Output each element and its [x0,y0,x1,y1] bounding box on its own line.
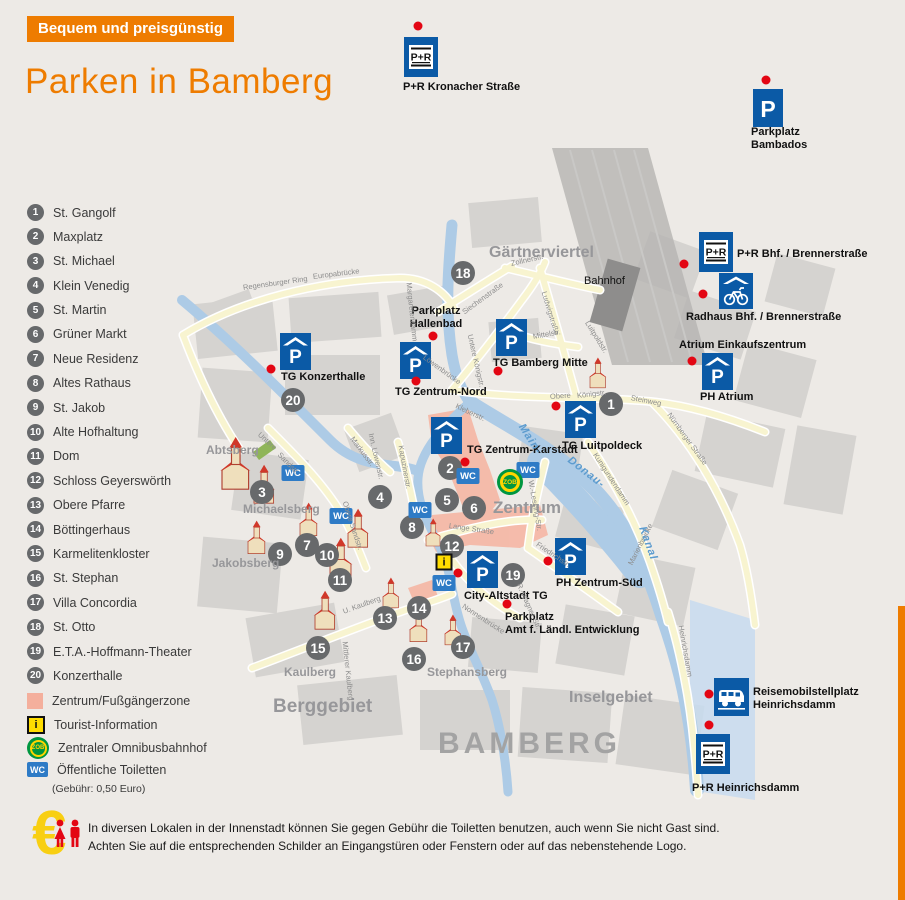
map-marker: 3 [250,480,274,504]
garage-parking-icon: P [467,551,498,593]
parking-label: ParkplatzAmt f. Ländl. Entwicklung [505,611,639,636]
svg-text:P: P [505,333,518,354]
street-label: Siechenstraße [460,280,504,316]
parking-label: TG Zentrum-Nord [395,386,487,399]
parking-label: Bahnhof [584,275,625,288]
location-dot [688,357,697,366]
svg-text:P: P [760,96,775,122]
location-dot [429,332,438,341]
street-label: Mittlerer Kaulberg [341,641,356,701]
parking-label: ParkplatzBambados [751,126,807,151]
street-label: Steinweg [630,393,662,408]
map-marker: 14 [407,596,431,620]
region-label: Inselgebiet [569,689,653,707]
parking-label: P+R Heinrichsdamm [692,782,799,795]
parking-label: Radhaus Bhf. / Brennerstraße [686,311,841,324]
garage-parking-icon: P [280,333,311,375]
map-overlay: P+RP+R Kronacher StraßePParkplatzBambado… [0,0,905,900]
city-label: BAMBERG [438,727,621,761]
location-dot [680,260,689,269]
location-dot [412,377,421,386]
garage-parking-icon: P [431,417,462,459]
tourist-info-icon: i [436,554,453,571]
garage-parking-icon: P [565,401,596,443]
wc-icon: WC [457,468,480,484]
parking-label: P+R Bhf. / Brennerstraße [737,248,868,261]
svg-text:P: P [440,431,453,452]
map-marker: 11 [328,568,352,592]
svg-text:P: P [711,367,724,388]
street-label: Kapuzinerstr. [397,445,413,490]
parking-label: Atrium Einkaufszentrum [679,339,806,352]
street-label: Mittelstr. [532,327,561,341]
map-marker: 10 [315,543,339,567]
location-dot [267,365,276,374]
location-dot [705,721,714,730]
parking-label: PH Atrium [700,391,753,404]
pr-parking-icon: P+R [699,232,733,277]
pr-parking-icon: P+R [404,37,438,82]
svg-text:P: P [409,356,422,377]
parking-label: ReisemobilstellplatzHeinrichsdamm [753,686,859,711]
map-marker: 6 [462,496,486,520]
region-label: Kaulberg [284,665,336,679]
parken-in-bamberg-poster: Bequem und preisgünstig Parken in Bamber… [0,0,905,900]
location-dot [705,690,714,699]
street-label: Untere [256,430,279,452]
location-dot [503,600,512,609]
svg-text:P: P [574,415,587,436]
location-dot [762,76,771,85]
location-dot [699,290,708,299]
street-label: Luitpoldstr. [583,319,610,355]
bike-parking-icon [719,273,753,314]
region-label: Abtsberg [206,443,259,457]
parking-label: TG Bamberg Mitte [493,357,588,370]
wc-icon: WC [433,575,456,591]
street-label: Untere Königstr. [466,333,487,387]
location-dot [414,22,423,31]
map-marker: 20 [281,388,305,412]
street-label: Obere [550,391,571,401]
region-label: Berggebiet [273,696,372,718]
street-label: Europabrücke [312,266,359,281]
map-marker: 16 [402,647,426,671]
street-label: Nonnenbrücke [461,602,507,636]
region-label: Stephansberg [427,665,507,679]
location-dot [552,402,561,411]
map-marker: 18 [451,261,475,285]
street-label: Nürnberger Straße [665,411,709,467]
svg-text:P: P [289,347,302,368]
camper-parking-icon [714,678,749,721]
street-label: Heinrichsdamm [677,625,695,678]
zob-icon: ZOB [497,469,523,495]
garage-parking-icon: P [496,319,527,361]
parking-label: TG Luitpoldeck [562,440,642,453]
svg-text:P+R: P+R [703,749,724,761]
svg-text:P+R: P+R [411,52,432,64]
map-marker: 13 [373,606,397,630]
svg-text:P: P [476,565,489,586]
svg-text:P+R: P+R [706,247,727,259]
map-marker: 17 [451,635,475,659]
parking-label: P+R Kronacher Straße [403,81,520,94]
map-marker: 15 [306,636,330,660]
parking-label: TG Konzerthalle [281,371,365,384]
map-marker: 5 [435,488,459,512]
street-label: Obere Sandstr. [341,500,365,551]
street-label: Regensburger Ring [242,274,308,292]
pr-parking-icon: P+R [696,734,730,779]
region-label: Jakobsberg [212,556,279,570]
wc-icon: WC [409,502,432,518]
map-marker: 8 [400,515,424,539]
region-label: Zentrum [493,498,561,518]
garage-parking-icon: P [702,353,733,395]
region-label: Michaelsberg [243,502,320,516]
parking-label: PH Zentrum-Süd [556,577,643,590]
map-marker: 4 [368,485,392,509]
